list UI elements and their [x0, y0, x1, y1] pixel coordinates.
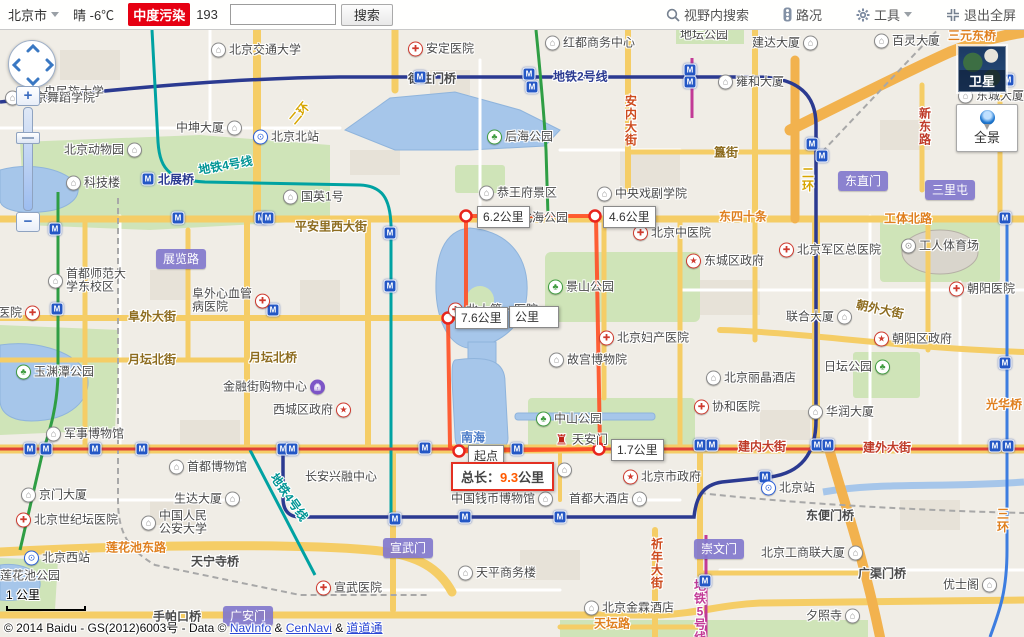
- poi-label[interactable]: 地坛公园: [680, 30, 728, 42]
- gear-icon: [856, 8, 870, 22]
- poi-text: 北京世纪坛医院: [34, 513, 118, 526]
- road-label: 地铁2号线: [553, 68, 608, 85]
- poi-text: 北京西站: [42, 551, 90, 564]
- top-toolbar: 北京市 晴 -6℃ 中度污染 193 搜索 视野内搜索 路况 工具 退出: [0, 0, 1024, 30]
- building-icon: ⌂: [803, 36, 818, 51]
- building-icon: ⌂: [557, 463, 572, 478]
- area-badge[interactable]: 东直门: [838, 171, 888, 191]
- zoom-slider-handle[interactable]: [16, 132, 40, 144]
- poi-text: 红都商务中心: [563, 36, 635, 49]
- poi-label[interactable]: ♣中山公园: [536, 412, 602, 427]
- poi-text: 北京市政府: [641, 470, 701, 483]
- poi-label[interactable]: 首都大酒店⌂: [569, 492, 647, 507]
- building-icon: ⌂: [46, 427, 61, 442]
- poi-label[interactable]: 北京动物园⌂: [64, 143, 142, 158]
- school-icon: ⌂: [141, 516, 156, 531]
- poi-text: 首都师范大 学东校区: [66, 268, 126, 295]
- navinfo-link[interactable]: NavInfo: [230, 621, 271, 635]
- scale-bar: [6, 606, 86, 611]
- metro-station-icon[interactable]: M: [384, 227, 397, 240]
- poi-label[interactable]: ♣玉渊潭公园: [16, 365, 94, 380]
- pegman-icon: [980, 110, 995, 125]
- building-icon: ⌂: [127, 143, 142, 158]
- route-waypoint[interactable]: [461, 211, 472, 222]
- hospital-icon: ✚: [316, 581, 331, 596]
- metro-station-icon[interactable]: M: [286, 443, 299, 456]
- road-label: 三环: [996, 508, 1010, 534]
- daodaotong-link[interactable]: 道道通: [347, 621, 383, 635]
- poi-text: 景山公园: [566, 280, 614, 293]
- poi-text: 北京金霖酒店: [602, 601, 674, 614]
- cennavi-link[interactable]: CenNavi: [286, 621, 332, 635]
- shopping-icon: ⌂: [310, 380, 325, 395]
- poi-label[interactable]: ⌂百灵大厦: [874, 34, 940, 49]
- poi-label[interactable]: ✚北京世纪坛医院: [16, 513, 118, 528]
- zoom-in-button[interactable]: +: [16, 86, 40, 106]
- poi-label[interactable]: 阜外心血管 病医院✚: [192, 288, 270, 315]
- search-input[interactable]: [230, 4, 336, 25]
- metro-station-icon[interactable]: M: [699, 575, 712, 588]
- poi-text: 朝阳区政府: [892, 332, 952, 345]
- poi-label[interactable]: 莲花池公园: [0, 569, 60, 582]
- road-label: 新东路: [918, 108, 932, 147]
- building-icon: ⌂: [225, 492, 240, 507]
- hotel-icon: ⌂: [632, 492, 647, 507]
- metro-station-icon[interactable]: M: [172, 212, 185, 225]
- metro-station-icon[interactable]: M: [806, 138, 819, 151]
- poi-label[interactable]: ⊙北京站: [761, 481, 815, 496]
- poi-text: 国英1号: [301, 190, 344, 203]
- search-icon: [666, 8, 680, 22]
- pan-compass[interactable]: [8, 40, 56, 88]
- road-label: 簋街: [714, 144, 738, 161]
- road-label: 天坛路: [594, 615, 630, 632]
- poi-label[interactable]: ✚安定医院: [408, 42, 474, 57]
- building-icon: ⌂: [169, 460, 184, 475]
- scale-text: 1 公里: [6, 586, 40, 603]
- poi-text: 京门大厦: [39, 488, 87, 501]
- poi-label[interactable]: 优士阁⌂: [943, 578, 997, 593]
- building-icon: ⌂: [283, 190, 298, 205]
- poi-text: 首都大酒店: [569, 492, 629, 505]
- metro-station-icon[interactable]: M: [389, 513, 402, 526]
- poi-text: 北京丽晶酒店: [724, 371, 796, 384]
- poi-text: 天安门: [572, 433, 608, 446]
- aqi-badge: 中度污染: [128, 3, 190, 26]
- poi-text: 西城区政府: [273, 403, 333, 416]
- gov-icon: ★: [686, 254, 701, 269]
- exit-fullscreen-button[interactable]: 退出全屏: [946, 5, 1016, 24]
- road-label: 南海: [461, 429, 485, 446]
- poi-label[interactable]: 西城区政府★: [273, 403, 351, 418]
- poi-text: 安定医院: [426, 42, 474, 55]
- poi-label[interactable]: ⌂天平商务楼: [458, 566, 536, 581]
- school-icon: ⌂: [48, 274, 63, 289]
- distance-label: 7.6公里: [455, 307, 508, 329]
- metro-station-icon[interactable]: M: [40, 443, 53, 456]
- poi-label[interactable]: ⌂首都师范大 学东校区: [48, 268, 126, 295]
- poi-label[interactable]: 生达大厦⌂: [174, 492, 240, 507]
- poi-text: 东城区政府: [704, 254, 764, 267]
- exit-fullscreen-icon: [946, 8, 960, 22]
- satellite-view-button[interactable]: 卫星: [958, 46, 1006, 92]
- road-label: 北展桥: [158, 171, 194, 188]
- metro-station-icon[interactable]: M: [999, 212, 1012, 225]
- hotel-icon: ⌂: [706, 371, 721, 386]
- poi-label[interactable]: ⌂中央戏剧学院: [597, 187, 687, 202]
- park-icon: ♣: [16, 365, 31, 380]
- poi-label[interactable]: ✚北京妇产医院: [599, 331, 689, 346]
- poi-text: 中坤大厦: [176, 121, 224, 134]
- building-icon: ⌂: [545, 36, 560, 51]
- poi-text: 后海公园: [505, 130, 553, 143]
- poi-text: 地坛公园: [680, 30, 728, 42]
- baidu-maps-app: 央民族大学⌂北京交通大学⌂北京舞蹈学院中坤大厦⌂⊙北京北站北京动物园⌂⌂科技楼⌂…: [0, 0, 1024, 637]
- view-search-button[interactable]: 视野内搜索: [666, 5, 749, 24]
- poi-text: 阜外心血管 病医院: [192, 288, 252, 315]
- poi-text: 金融街购物中心: [223, 380, 307, 393]
- poi-text: 玉渊潭公园: [34, 365, 94, 378]
- tiananmen-icon: ♜: [554, 433, 569, 448]
- poi-label[interactable]: ⌂恭王府景区: [479, 186, 557, 201]
- poi-text: 长安兴融中心: [305, 470, 377, 483]
- road-label: 广渠门桥: [858, 565, 906, 582]
- hospital-icon: ✚: [408, 42, 423, 57]
- poi-text: 北京北站: [271, 130, 319, 143]
- road-label: 莲花池东路: [106, 539, 166, 556]
- poi-label[interactable]: ⌂军事博物馆: [46, 427, 124, 442]
- poi-label[interactable]: ★东城区政府: [686, 254, 764, 269]
- distance-label-fragment: 公里: [509, 306, 559, 328]
- map-canvas[interactable]: 央民族大学⌂北京交通大学⌂北京舞蹈学院中坤大厦⌂⊙北京北站北京动物园⌂⌂科技楼⌂…: [0, 30, 1024, 637]
- poi-text: 建达大厦: [752, 36, 800, 49]
- building-icon: ⌂: [845, 609, 860, 624]
- metro-station-icon[interactable]: M: [24, 443, 37, 456]
- hospital-icon: ✚: [599, 331, 614, 346]
- poi-text: 北京军区总医院: [797, 243, 881, 256]
- poi-text: 中国人民 公安大学: [159, 510, 207, 537]
- poi-label[interactable]: ⊙工人体育场: [901, 239, 979, 254]
- panorama-button[interactable]: 全景: [956, 104, 1018, 152]
- road-label: 东便门桥: [806, 507, 854, 524]
- metro-station-icon[interactable]: M: [511, 443, 524, 456]
- hospital-icon: ✚: [255, 294, 270, 309]
- building-icon: ⌂: [538, 492, 553, 507]
- road-label: 祈年大街: [650, 538, 664, 590]
- park-icon: ♣: [536, 412, 551, 427]
- poi-label[interactable]: ⌂北京丽晶酒店: [706, 371, 796, 386]
- station-icon: ⊙: [24, 551, 39, 566]
- zoom-out-button[interactable]: −: [16, 212, 40, 232]
- road-label: 安内大街: [624, 95, 638, 147]
- metro-station-icon[interactable]: M: [523, 68, 536, 81]
- pan-up-icon: [28, 46, 38, 51]
- metro-station-icon[interactable]: M: [526, 81, 539, 94]
- sight-icon: ⌂: [479, 186, 494, 201]
- poi-label[interactable]: ⌂华润大厦: [808, 405, 874, 420]
- road-label: 东四十条: [719, 208, 767, 225]
- building-icon: ⌂: [227, 121, 242, 136]
- poi-text: 北京站: [779, 481, 815, 494]
- building-icon: ⌂: [837, 310, 852, 325]
- park-icon: ♣: [548, 280, 563, 295]
- building-icon: ⌂: [718, 75, 733, 90]
- metro-station-icon[interactable]: M: [262, 212, 275, 225]
- school-icon: ⌂: [597, 187, 612, 202]
- pan-right-icon: [47, 60, 52, 70]
- metro-station-icon[interactable]: M: [706, 439, 719, 452]
- weather-text: 晴 -6℃: [73, 5, 114, 24]
- chevron-down-icon: [904, 12, 912, 17]
- metro-station-icon[interactable]: M: [554, 511, 567, 524]
- metro-station-icon[interactable]: M: [384, 280, 397, 293]
- road-label: 平安里西大街: [295, 218, 367, 235]
- road-label: 二环: [801, 167, 815, 193]
- gov-icon: ★: [623, 470, 638, 485]
- poi-label[interactable]: ⌂北京金霖酒店: [584, 601, 674, 616]
- area-badge[interactable]: 展览路: [156, 249, 206, 269]
- poi-text: 夕照寺: [806, 609, 842, 622]
- poi-text: 宣武医院: [334, 581, 382, 594]
- poi-text: 北京动物园: [64, 143, 124, 156]
- metro-station-icon[interactable]: M: [822, 439, 835, 452]
- metro-station-icon[interactable]: M: [414, 71, 427, 84]
- poi-label[interactable]: 医院✚: [0, 306, 40, 321]
- poi-label[interactable]: ⌂故宫博物院: [549, 353, 627, 368]
- poi-label[interactable]: ⊙北京北站: [253, 130, 319, 145]
- poi-label[interactable]: ⌂科技楼: [66, 176, 120, 191]
- station-icon: ⊙: [253, 130, 268, 145]
- poi-text: 军事博物馆: [64, 427, 124, 440]
- distance-label: 6.2公里: [477, 206, 530, 228]
- park-icon: ♣: [875, 360, 890, 375]
- poi-label[interactable]: ✚北京军区总医院: [779, 243, 881, 258]
- poi-label[interactable]: ⌂中国人民 公安大学: [141, 510, 207, 537]
- poi-text: 北京工商联大厦: [761, 546, 845, 559]
- road-label: 月坛北街: [128, 351, 176, 368]
- building-icon: ⌂: [848, 546, 863, 561]
- search-button[interactable]: 搜索: [341, 4, 393, 26]
- poi-label[interactable]: ⌂京门大厦: [21, 488, 87, 503]
- gov-icon: ★: [336, 403, 351, 418]
- metro-station-icon[interactable]: M: [136, 443, 149, 456]
- park-icon: ♣: [487, 130, 502, 145]
- poi-label[interactable]: ♣景山公园: [548, 280, 614, 295]
- poi-label[interactable]: ⌂雍和大厦: [718, 75, 784, 90]
- metro-station-icon[interactable]: M: [459, 511, 472, 524]
- poi-label[interactable]: ⌂国英1号: [283, 190, 344, 205]
- station-icon: ⊙: [761, 481, 776, 496]
- building-icon: ⌂: [21, 488, 36, 503]
- building-icon: ⌂: [982, 578, 997, 593]
- poi-text: 首都博物馆: [187, 460, 247, 473]
- poi-text: 工人体育场: [919, 239, 979, 252]
- building-icon: ⌂: [458, 566, 473, 581]
- metro-station-icon[interactable]: M: [49, 223, 62, 236]
- distance-label: 4.6公里: [603, 206, 656, 228]
- building-icon: ⌂: [874, 34, 889, 49]
- road-label: 阜外大街: [128, 308, 176, 325]
- metro-station-icon[interactable]: M: [51, 303, 64, 316]
- poi-label[interactable]: 中国钱币博物馆⌂: [451, 492, 553, 507]
- area-badge[interactable]: 宣武门: [383, 538, 433, 558]
- building-icon: ⌂: [808, 405, 823, 420]
- route-start-point[interactable]: [454, 446, 465, 457]
- road-label: 天宁寺桥: [191, 553, 239, 570]
- road-label: 光华桥: [986, 396, 1022, 413]
- route-total-value: 9.3: [500, 470, 518, 485]
- area-badge[interactable]: 崇文门: [694, 539, 744, 559]
- traffic-light-icon: [783, 7, 792, 22]
- hospital-icon: ✚: [694, 400, 709, 415]
- metro-station-icon[interactable]: M: [419, 442, 432, 455]
- poi-text: 科技楼: [84, 176, 120, 189]
- poi-label[interactable]: 长安兴融中心: [305, 470, 377, 483]
- poi-label[interactable]: ✚宣武医院: [316, 581, 382, 596]
- metro-station-icon[interactable]: M: [999, 357, 1012, 370]
- hospital-icon: ✚: [779, 243, 794, 258]
- route-total-label: 总长：9.3公里: [451, 462, 554, 491]
- road-label: 三元东桥: [948, 30, 996, 44]
- poi-label[interactable]: ★朝阳区政府: [874, 332, 952, 347]
- poi-label[interactable]: ⌂首都博物馆: [169, 460, 247, 475]
- poi-label[interactable]: ⌂红都商务中心: [545, 36, 635, 51]
- poi-label[interactable]: ⊙北京西站: [24, 551, 90, 566]
- route-waypoint[interactable]: [590, 211, 601, 222]
- poi-label[interactable]: ♣后海公园: [487, 130, 553, 145]
- poi-text: 协和医院: [712, 400, 760, 413]
- school-icon: ⌂: [211, 43, 226, 58]
- road-label: 地铁5号线: [693, 580, 707, 637]
- poi-label[interactable]: ♜天安门: [554, 433, 608, 448]
- gov-icon: ★: [874, 332, 889, 347]
- poi-label[interactable]: 建达大厦⌂: [752, 36, 818, 51]
- poi-text: 华润大厦: [826, 405, 874, 418]
- distance-label: 1.7公里: [611, 439, 664, 461]
- copyright: © 2014 Baidu - GS(2012)6003号 - Data © Na…: [4, 619, 383, 636]
- hotel-icon: ⌂: [584, 601, 599, 616]
- aqi-value: 193: [196, 7, 218, 22]
- poi-text: 莲花池公园: [0, 569, 60, 582]
- area-badge[interactable]: 三里屯: [925, 180, 975, 200]
- poi-text: 中山公园: [554, 412, 602, 425]
- metro-station-icon[interactable]: M: [989, 440, 1002, 453]
- road-label: 建外大街: [863, 439, 911, 456]
- poi-text: 北京中医院: [651, 226, 711, 239]
- poi-text: 中央戏剧学院: [615, 187, 687, 200]
- poi-text: 天平商务楼: [476, 566, 536, 579]
- poi-label[interactable]: 日坛公园♣: [824, 360, 890, 375]
- road-label: 工体北路: [884, 210, 932, 227]
- poi-text: 百灵大厦: [892, 34, 940, 47]
- poi-text: 联合大厦: [786, 310, 834, 323]
- metro-station-icon[interactable]: M: [816, 150, 829, 163]
- poi-text: 日坛公园: [824, 360, 872, 373]
- poi-text: 中国钱币博物馆: [451, 492, 535, 505]
- poi-text: 北京妇产医院: [617, 331, 689, 344]
- poi-text: 优士阁: [943, 578, 979, 591]
- pan-down-icon: [28, 79, 38, 84]
- metro-station-icon[interactable]: M: [684, 76, 697, 89]
- stadium-icon: ⊙: [901, 239, 916, 254]
- pan-left-icon: [14, 60, 19, 70]
- poi-label[interactable]: ✚朝阳医院: [949, 282, 1015, 297]
- poi-label[interactable]: 北京工商联大厦⌂: [761, 546, 863, 561]
- poi-text: 故宫博物院: [567, 353, 627, 366]
- road-label: 建内大街: [738, 438, 786, 455]
- hospital-icon: ✚: [25, 306, 40, 321]
- zoom-slider-track[interactable]: [23, 107, 33, 211]
- hospital-icon: ✚: [16, 513, 31, 528]
- poi-label[interactable]: 联合大厦⌂: [786, 310, 852, 325]
- poi-label[interactable]: 金融街购物中心⌂: [223, 380, 325, 395]
- tools-menu-button[interactable]: 工具: [856, 5, 912, 24]
- metro-station-icon[interactable]: M: [142, 173, 155, 186]
- traffic-button[interactable]: 路况: [783, 5, 822, 24]
- poi-label[interactable]: 夕照寺⌂: [806, 609, 860, 624]
- poi-text: 北京交通大学: [229, 43, 301, 56]
- metro-station-icon[interactable]: M: [1002, 440, 1015, 453]
- poi-label[interactable]: 中坤大厦⌂: [176, 121, 242, 136]
- city-selector[interactable]: 北京市: [8, 5, 59, 24]
- building-icon: ⌂: [66, 176, 81, 191]
- poi-text: 生达大厦: [174, 492, 222, 505]
- metro-station-icon[interactable]: M: [89, 443, 102, 456]
- poi-label[interactable]: ★北京市政府: [623, 470, 701, 485]
- poi-label[interactable]: ⌂北京交通大学: [211, 43, 301, 58]
- hospital-icon: ✚: [949, 282, 964, 297]
- poi-text: 朝阳医院: [967, 282, 1015, 295]
- road-label: 月坛北桥: [249, 349, 297, 366]
- poi-text: 雍和大厦: [736, 75, 784, 88]
- chevron-down-icon: [51, 12, 59, 17]
- poi-text: 医院: [0, 306, 22, 319]
- poi-label[interactable]: ✚协和医院: [694, 400, 760, 415]
- building-icon: ⌂: [549, 353, 564, 368]
- poi-text: 恭王府景区: [497, 186, 557, 199]
